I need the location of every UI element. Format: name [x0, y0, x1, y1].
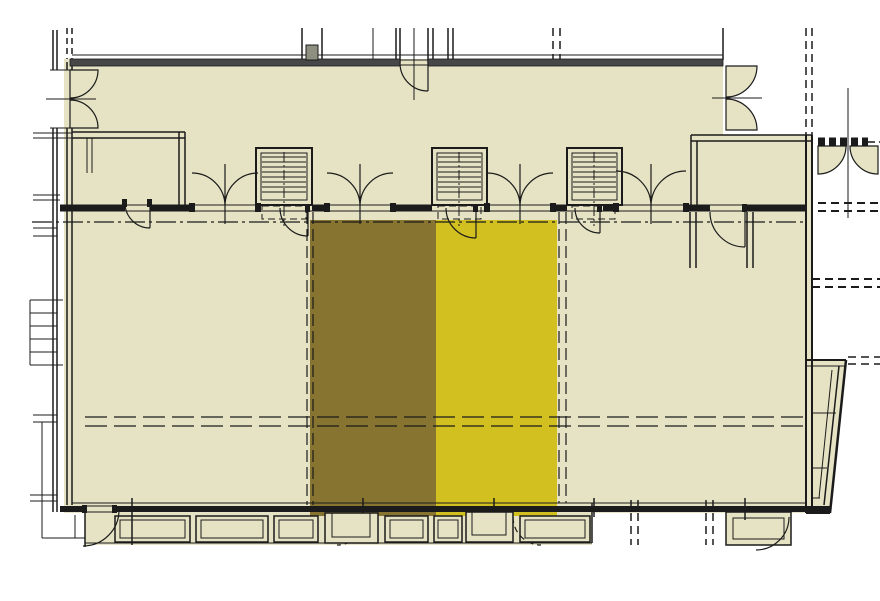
top-facade-band: [70, 59, 723, 66]
right-stoop-floor: [726, 512, 791, 545]
floor-plan-canvas: [0, 0, 880, 601]
corridor-wall-segment: [745, 205, 806, 211]
door-jamb: [742, 204, 747, 212]
facade-band-right: [428, 59, 723, 66]
chimney-block: [306, 45, 318, 60]
bottom-wall-segment: [115, 506, 830, 512]
facade-band-left: [70, 59, 400, 66]
door-jamb: [112, 505, 117, 513]
highlight-zones: [310, 220, 557, 516]
corridor-wall-segment: [393, 205, 432, 211]
bottom-wall-segment: [60, 506, 85, 512]
highlighted-unit-right: [436, 220, 557, 516]
highlighted-unit-left: [310, 220, 436, 516]
corridor-wall-segment: [60, 205, 125, 211]
door-jamb: [189, 203, 195, 212]
door-jamb: [550, 203, 556, 212]
door-jamb: [324, 203, 330, 212]
entry-stoop-left: [325, 513, 378, 543]
entry-stoop-middle: [466, 512, 513, 542]
door-jamb: [683, 203, 689, 212]
corridor-wall-segment: [150, 205, 192, 211]
door-jamb: [82, 505, 87, 513]
door-jamb: [390, 203, 396, 212]
corridor-wall-segment: [686, 205, 710, 211]
floor-plan-page: [0, 0, 880, 601]
